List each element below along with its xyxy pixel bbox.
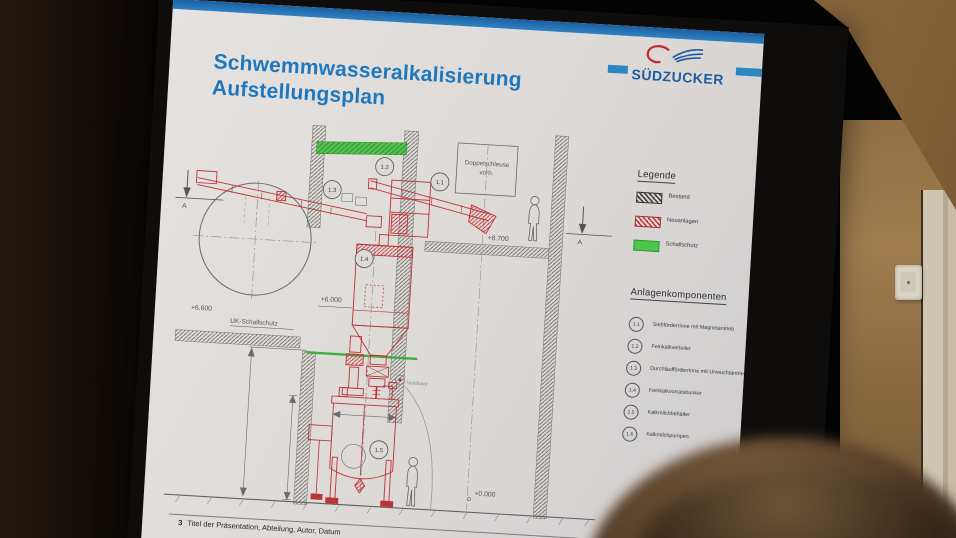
svg-text:1.1: 1.1	[435, 180, 444, 187]
component-item-1-6: 1.6 Kalkmilchpumpen	[622, 426, 623, 440]
component-number: 1.4	[624, 382, 640, 398]
component-label: Feinkalkvorratsbunker	[649, 387, 702, 396]
slide-footer: 3Titel der Präsentation, Abteilung, Auto…	[178, 518, 341, 537]
component-number: 1.3	[626, 360, 642, 376]
component-label: Kalkmilchpumpen	[646, 431, 689, 440]
component-label: Durchlaufförderrinne mit Unwuchtantrieb	[650, 365, 747, 377]
slide: Schwemmwasseralkalisierung Aufstellungsp…	[140, 0, 764, 538]
component-label: Feinkalkverteiler	[651, 343, 691, 351]
person-figure-upper	[528, 196, 541, 241]
svg-text:+6.000: +6.000	[320, 296, 342, 304]
component-number: 1.1	[628, 316, 644, 332]
photo-of-presentation: Schwemmwasseralkalisierung Aufstellungsp…	[0, 0, 956, 538]
legend-swatch-bestand	[636, 192, 663, 205]
component-item-1-5: 1.5 Kalkmilchbehälter	[623, 404, 624, 418]
section-marker-left: A	[175, 169, 225, 212]
svg-text:+0.000: +0.000	[474, 491, 496, 499]
legend-label: Neuanlagen	[667, 217, 699, 225]
component-item-1-3: 1.3 Durchlaufförderrinne mit Unwuchtantr…	[626, 360, 627, 374]
legend-item-schallschutz: Schallschutz	[633, 239, 634, 251]
component-label: Siebförderrinne mit Magnetantrieb	[653, 321, 735, 332]
suedzucker-logo: SÜDZUCKER	[629, 40, 735, 90]
svg-text:vorh.: vorh.	[479, 169, 494, 177]
slide-top-bar	[173, 0, 765, 44]
footer-text: Titel der Präsentation, Abteilung, Autor…	[187, 519, 341, 537]
svg-text:Ventilator: Ventilator	[407, 380, 429, 387]
component-number: 1.2	[627, 338, 643, 354]
installation-plan-drawing: Doppelschleuse vorh.	[153, 107, 626, 533]
svg-text:1.2: 1.2	[380, 165, 389, 172]
components-heading: Anlagenkomponenten	[630, 286, 727, 305]
component-number: 1.5	[623, 404, 639, 420]
legend-item-bestand: Bestand	[636, 191, 637, 203]
component-label: Kalkmilchbehälter	[647, 409, 690, 418]
page-number: 3	[178, 518, 183, 527]
uk-schallschutz-label: UK-Schallschutz	[230, 318, 294, 330]
light-switch-screw	[907, 281, 910, 284]
section-marker-right: A	[565, 206, 613, 249]
legend-label: Schallschutz	[665, 241, 698, 249]
legend-heading: Legende	[637, 169, 676, 184]
logo-red-arc	[647, 46, 669, 63]
legend-label: Bestand	[668, 194, 690, 201]
schallschutz-band	[316, 138, 407, 159]
person-figure-lower	[406, 457, 419, 506]
doppelschleuse-box: Doppelschleuse vorh.	[455, 143, 518, 196]
conveyor-supports	[341, 193, 367, 205]
logo-bar-right	[736, 67, 762, 77]
component-item-1-4: 1.4 Feinkalkvorratsbunker	[624, 382, 625, 396]
level-6000-mark	[318, 306, 352, 308]
slide-title: Schwemmwasseralkalisierung Aufstellungsp…	[211, 49, 522, 119]
light-switch	[895, 265, 922, 300]
svg-text:A: A	[577, 239, 582, 246]
level-0000-mark	[467, 498, 470, 501]
svg-text:1.4: 1.4	[360, 257, 369, 264]
legend-swatch-neuanlagen	[635, 216, 662, 229]
svg-text:1.5: 1.5	[374, 448, 383, 455]
logo-bar-left	[608, 65, 628, 74]
component-item-1-2: 1.2 Feinkalkverteiler	[627, 338, 628, 352]
svg-text:+8.700: +8.700	[487, 235, 509, 243]
component-item-1-1: 1.1 Siebförderrinne mit Magnetantrieb	[628, 316, 629, 330]
logo-blue-leaves	[672, 48, 703, 63]
svg-text:Doppelschleuse: Doppelschleuse	[464, 159, 510, 169]
legend-swatch-schallschutz	[633, 240, 660, 253]
svg-text:A: A	[182, 203, 187, 210]
existing-walls	[166, 114, 569, 519]
component-number: 1.6	[622, 426, 638, 442]
svg-text:1.3: 1.3	[328, 188, 337, 195]
legend-item-neuanlagen: Neuanlagen	[635, 215, 636, 227]
svg-text:+6.600: +6.600	[191, 304, 213, 312]
